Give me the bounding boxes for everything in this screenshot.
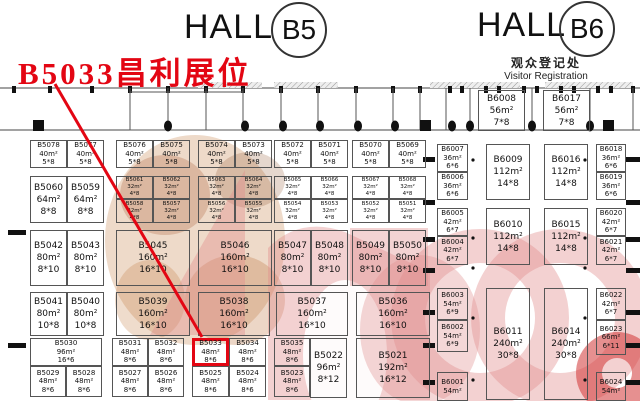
booth-area-label: 32m² xyxy=(322,184,337,191)
booth-area-label: 48m² xyxy=(121,377,140,386)
booth-id-label: B5027 xyxy=(119,369,142,378)
booth-dims-label: 8*10 xyxy=(282,264,304,276)
booth-id-label: B5061 xyxy=(126,177,144,184)
booth-id-label: B5057 xyxy=(163,201,181,208)
booth-dims-label: 8*8 xyxy=(41,206,57,218)
booth-dims-label: 16*10 xyxy=(379,320,406,332)
booth-dims-label: 14*8 xyxy=(497,178,519,190)
booth-dims-label: 7*8 xyxy=(494,117,510,129)
booth-B5053: B505332m²4*8 xyxy=(311,199,348,223)
booth-area-label: 32m² xyxy=(363,184,378,191)
booth-dims-label: 4*8 xyxy=(167,191,177,198)
booth-area-label: 32m² xyxy=(400,184,415,191)
booth-dims-label: 16*6 xyxy=(58,356,75,365)
booth-B5076: B507640m²5*8 xyxy=(116,140,153,168)
booth-area-label: 40m² xyxy=(244,150,263,159)
booth-area-label: 96m² xyxy=(317,362,341,374)
hall-b5-badge: B5 xyxy=(271,2,327,58)
booth-dims-label: 8*8 xyxy=(78,206,94,218)
booth-id-label: B5046 xyxy=(220,240,249,252)
booth-id-label: B5026 xyxy=(155,369,178,378)
booth-B5058: B505832m²4*8 xyxy=(116,199,153,223)
booth-id-label: B5032 xyxy=(155,339,178,348)
booth-area-label: 64m² xyxy=(37,194,61,206)
booth-area-label: 32m² xyxy=(209,184,224,191)
booth-B5056: B505632m²4*8 xyxy=(198,199,235,223)
booth-area-label: 80m² xyxy=(281,252,305,264)
booth-area-label: 80m² xyxy=(37,252,61,264)
booth-id-label: B5077 xyxy=(74,141,97,150)
booth-dims-label: 8*6 xyxy=(124,386,136,395)
booth-dims-label: 8*6 xyxy=(204,386,216,395)
booth-id-label: B5023 xyxy=(281,369,304,378)
booth-id-label: B5049 xyxy=(356,240,385,252)
booth-id-label: B5051 xyxy=(399,201,417,208)
booth-B5026: B502648m²8*6 xyxy=(148,366,184,397)
booth-B6007: B600736m²6*6 xyxy=(437,144,468,172)
booth-area-label: 54m² xyxy=(443,300,462,309)
booth-B5032: B503248m²8*6 xyxy=(148,338,184,366)
booth-id-label: B5072 xyxy=(281,141,304,150)
booth-B5030: B503096m²16*6 xyxy=(30,338,102,366)
booth-dims-label: 8*6 xyxy=(241,386,253,395)
booth-dims-label: 8*10 xyxy=(397,264,419,276)
booth-B6005: B600542m²6*7 xyxy=(437,208,468,236)
booth-B6006: B600636m²6*6 xyxy=(437,172,468,200)
booth-dims-label: 4*8 xyxy=(249,215,259,222)
booth-area-label: 160m² xyxy=(138,252,168,264)
booth-B5071: B507140m²5*8 xyxy=(311,140,348,168)
booth-area-label: 160m² xyxy=(378,308,408,320)
booth-B5072: B507240m²5*8 xyxy=(274,140,311,168)
booth-B5025: B502548m²8*6 xyxy=(192,366,229,397)
booth-id-label: B5048 xyxy=(315,240,344,252)
booth-area-label: 56m² xyxy=(555,105,579,117)
booth-B5047: B504780m²8*10 xyxy=(274,230,311,286)
booth-dims-label: 5*8 xyxy=(323,158,335,167)
booth-id-label: B5065 xyxy=(284,177,302,184)
booth-dims-label: 6*11 xyxy=(603,342,620,351)
booth-area-label: 36m² xyxy=(443,154,462,163)
booth-B5051: B505132m²4*8 xyxy=(389,199,426,223)
booth-id-label: B5036 xyxy=(378,296,407,308)
booth-B6024: B602454m² xyxy=(596,372,626,401)
booth-dims-label: 4*8 xyxy=(403,191,413,198)
booth-area-label: 36m² xyxy=(602,154,621,163)
booth-area-label: 80m² xyxy=(74,308,98,320)
booth-id-label: B5030 xyxy=(55,339,78,348)
booth-dims-label: 16*10 xyxy=(298,320,325,332)
booth-B5050: B505080m²8*10 xyxy=(389,230,426,286)
booth-dims-label: 16*10 xyxy=(221,264,248,276)
booth-dims-label: 16*12 xyxy=(379,374,406,386)
booth-area-label: 48m² xyxy=(201,348,220,357)
booth-area-label: 40m² xyxy=(361,150,380,159)
booth-B5077: B507740m²5*8 xyxy=(67,140,104,168)
booth-area-label: 40m² xyxy=(283,150,302,159)
booth-id-label: B5076 xyxy=(123,141,146,150)
hall-b6-title: HALL xyxy=(477,6,566,45)
booth-B5041: B504180m²10*8 xyxy=(30,292,67,336)
booth-B5034: B503448m²8*6 xyxy=(229,338,266,366)
booth-id-label: B5074 xyxy=(205,141,228,150)
booth-dims-label: 6*7 xyxy=(605,226,617,235)
booth-B5024: B502448m²8*6 xyxy=(229,366,266,397)
booth-B5046: B5046160m²16*10 xyxy=(198,230,272,286)
booth-id-label: B5034 xyxy=(236,339,259,348)
booth-area-label: 42m² xyxy=(602,300,621,309)
booth-B5049: B504980m²8*10 xyxy=(352,230,389,286)
booth-id-label: B5045 xyxy=(138,240,167,252)
booth-B6004: B600442m²6*7 xyxy=(437,236,468,265)
booth-area-label: 40m² xyxy=(76,150,95,159)
booth-id-label: B6008 xyxy=(487,93,516,105)
booth-id-label: B6005 xyxy=(441,209,464,218)
booth-id-label: B6011 xyxy=(493,326,522,338)
booth-id-label: B6006 xyxy=(441,173,464,182)
booth-B5043: B504380m²8*10 xyxy=(67,230,104,286)
booth-B5023: B502348m²8*6 xyxy=(274,366,310,397)
booth-B5052: B505232m²4*8 xyxy=(352,199,389,223)
booth-area-label: 160m² xyxy=(138,308,168,320)
booth-id-label: B6016 xyxy=(551,154,580,166)
booth-id-label: B6017 xyxy=(552,93,581,105)
booth-id-label: B5067 xyxy=(362,177,380,184)
booth-id-label: B5066 xyxy=(321,177,339,184)
booth-area-label: 48m² xyxy=(39,377,58,386)
booth-dims-label: 7*8 xyxy=(559,117,575,129)
booth-dims-label: 8*6 xyxy=(204,356,216,365)
booth-dims-label: 4*8 xyxy=(325,215,335,222)
booth-dims-label: 8*10 xyxy=(319,264,341,276)
booth-area-label: 48m² xyxy=(157,348,176,357)
hall-b6-badge: B6 xyxy=(559,1,615,57)
booth-dims-label: 8*6 xyxy=(286,356,298,365)
booth-dims-label: 6*7 xyxy=(446,226,458,235)
booth-B5037: B5037160m²16*10 xyxy=(276,292,348,336)
booth-dims-label: 6*9 xyxy=(446,308,458,317)
booth-dims-label: 14*8 xyxy=(555,178,577,190)
booth-id-label: B6001 xyxy=(441,378,464,387)
booth-dims-label: 4*8 xyxy=(288,191,298,198)
booth-area-label: 112m² xyxy=(493,166,523,178)
booth-area-label: 32m² xyxy=(246,208,261,215)
booth-B5066: B506632m²4*8 xyxy=(311,176,348,199)
booth-id-label: B5024 xyxy=(236,369,259,378)
booth-id-label: B6022 xyxy=(600,291,623,300)
booth-id-label: B5042 xyxy=(34,240,63,252)
booth-area-label: 40m² xyxy=(398,150,417,159)
booth-dims-label: 6*6 xyxy=(446,162,458,171)
booth-area-label: 240m² xyxy=(551,338,581,350)
booth-id-label: B6018 xyxy=(600,145,623,154)
booth-area-label: 240m² xyxy=(493,338,523,350)
booth-dims-label: 8*6 xyxy=(160,386,172,395)
booth-B5031: B503148m²8*6 xyxy=(112,338,148,366)
booth-area-label: 48m² xyxy=(75,377,94,386)
booth-B5036: B5036160m²16*10 xyxy=(356,292,430,336)
booth-dims-label: 8*6 xyxy=(42,386,54,395)
booth-dims-label: 30*8 xyxy=(497,350,519,362)
booth-area-label: 80m² xyxy=(318,252,342,264)
booth-dims-label: 5*8 xyxy=(79,158,91,167)
booth-dims-label: 4*8 xyxy=(366,215,376,222)
booth-id-label: B5021 xyxy=(378,350,407,362)
booth-dims-label: 4*8 xyxy=(325,191,335,198)
booth-dims-label: 6*7 xyxy=(605,255,617,264)
booth-B5068: B506832m²4*8 xyxy=(389,176,426,199)
booth-area-label: 48m² xyxy=(201,377,220,386)
booth-area-label: 192m² xyxy=(378,362,408,374)
booth-B5078: B507840m²5*8 xyxy=(30,140,67,168)
booth-area-label: 40m² xyxy=(162,150,181,159)
booth-B6010: B6010112m²14*8 xyxy=(486,208,530,265)
floor-plan: B507840m²5*8B507740m²5*8B507640m²5*8B507… xyxy=(0,0,640,401)
booth-id-label: B5056 xyxy=(208,201,226,208)
booth-id-label: B5055 xyxy=(245,201,263,208)
booth-B5063: B506332m²4*8 xyxy=(198,176,235,199)
booth-id-label: B5069 xyxy=(396,141,419,150)
visitor-registration-zh: 观众登记处 xyxy=(488,56,604,70)
booth-B5028: B502848m²8*6 xyxy=(66,366,102,397)
booth-area-label: 36m² xyxy=(602,182,621,191)
hall-b5-title: HALL xyxy=(184,8,273,47)
booth-dims-label: 4*8 xyxy=(403,215,413,222)
booth-area-label: 32m² xyxy=(322,208,337,215)
booth-dims-label: 8*6 xyxy=(286,386,298,395)
booth-id-label: B5064 xyxy=(245,177,263,184)
booth-area-label: 42m² xyxy=(443,246,462,255)
booth-dims-label: 4*8 xyxy=(167,215,177,222)
booth-dims-label: 5*8 xyxy=(128,158,140,167)
booth-id-label: B5031 xyxy=(119,339,142,348)
booth-B6009: B6009112m²14*8 xyxy=(486,144,530,200)
booth-dims-label: 6*9 xyxy=(446,340,458,349)
booth-id-label: B5068 xyxy=(399,177,417,184)
booth-area-label: 32m² xyxy=(400,208,415,215)
booth-dims-label: 6*6 xyxy=(605,162,617,171)
booth-dims-label: 14*8 xyxy=(555,243,577,255)
booth-area-label: 48m² xyxy=(283,348,302,357)
booth-B6003: B600354m²6*9 xyxy=(437,288,468,320)
booth-id-label: B5033 xyxy=(199,339,222,348)
booth-area-label: 40m² xyxy=(320,150,339,159)
booth-id-label: B5029 xyxy=(37,369,60,378)
booth-dims-label: 8*6 xyxy=(124,356,136,365)
booth-id-label: B5050 xyxy=(393,240,422,252)
booth-B5073: B507340m²5*8 xyxy=(235,140,272,168)
booth-id-label: B5078 xyxy=(37,141,60,150)
booth-id-label: B5059 xyxy=(71,182,100,194)
booth-id-label: B5039 xyxy=(138,296,167,308)
booth-dims-label: 16*10 xyxy=(139,264,166,276)
booth-area-label: 54m² xyxy=(443,387,462,396)
booth-B6002: B600254m²6*9 xyxy=(437,320,468,352)
booth-area-label: 48m² xyxy=(157,377,176,386)
booth-area-label: 112m² xyxy=(551,166,581,178)
booth-B5048: B504880m²8*10 xyxy=(311,230,348,286)
booth-area-label: 32m² xyxy=(209,208,224,215)
booth-area-label: 48m² xyxy=(238,377,257,386)
booth-B5060: B506064m²8*8 xyxy=(30,176,67,223)
booth-dims-label: 5*8 xyxy=(165,158,177,167)
booth-B5075: B507540m²5*8 xyxy=(153,140,190,168)
booth-id-label: B6003 xyxy=(441,291,464,300)
booth-dims-label: 6*7 xyxy=(605,308,617,317)
booth-B5057: B505732m²4*8 xyxy=(153,199,190,223)
booth-B5059: B505964m²8*8 xyxy=(67,176,104,223)
booth-id-label: B5071 xyxy=(318,141,341,150)
booth-B6011: B6011240m²30*8 xyxy=(486,288,530,400)
booth-id-label: B5060 xyxy=(34,182,63,194)
booth-area-label: 32m² xyxy=(164,208,179,215)
booth-dims-label: 4*8 xyxy=(212,215,222,222)
booth-area-label: 48m² xyxy=(238,348,257,357)
booth-id-label: B6020 xyxy=(600,209,623,218)
booth-B5027: B502748m²8*6 xyxy=(112,366,148,397)
booth-area-label: 32m² xyxy=(363,208,378,215)
booth-B6019: B601936m²6*6 xyxy=(596,172,626,200)
booth-area-label: 40m² xyxy=(207,150,226,159)
booth-id-label: B6023 xyxy=(600,325,623,334)
booth-B5035: B503548m²8*6 xyxy=(274,338,310,366)
booth-id-label: B6019 xyxy=(600,173,623,182)
booth-id-label: B5058 xyxy=(126,201,144,208)
booth-area-label: 42m² xyxy=(602,218,621,227)
booth-area-label: 54m² xyxy=(443,332,462,341)
booth-dims-label: 16*10 xyxy=(139,320,166,332)
booth-area-label: 36m² xyxy=(443,182,462,191)
booth-id-label: B6010 xyxy=(493,219,522,231)
booth-B6008: B600856m²7*8 xyxy=(478,90,525,131)
booth-B5038: B5038160m²16*10 xyxy=(198,292,270,336)
booth-area-label: 42m² xyxy=(602,246,621,255)
booth-dims-label: 8*10 xyxy=(75,264,97,276)
booth-B5070: B507040m²5*8 xyxy=(352,140,389,168)
booth-dims-label: 4*8 xyxy=(130,191,140,198)
booth-B6023: B602366m²6*11 xyxy=(596,320,626,355)
booth-dims-label: 30*8 xyxy=(555,350,577,362)
booth-id-label: B6002 xyxy=(441,323,464,332)
booth-area-label: 54m² xyxy=(602,387,621,396)
booth-dims-label: 10*8 xyxy=(75,320,97,332)
booth-dims-label: 8*6 xyxy=(78,386,90,395)
booth-B5069: B506940m²5*8 xyxy=(389,140,426,168)
booth-area-label: 40m² xyxy=(39,150,58,159)
booth-B6017: B601756m²7*8 xyxy=(543,90,590,131)
booth-B6022: B602242m²6*7 xyxy=(596,288,626,320)
booth-B5040: B504080m²10*8 xyxy=(67,292,104,336)
booth-B5054: B505432m²4*8 xyxy=(274,199,311,223)
booth-callout-label: B5033昌利展位 xyxy=(18,48,252,93)
booth-area-label: 96m² xyxy=(57,348,76,357)
booth-id-label: B5047 xyxy=(278,240,307,252)
booth-id-label: B5062 xyxy=(163,177,181,184)
booth-dims-label: 4*8 xyxy=(366,191,376,198)
booth-id-label: B5025 xyxy=(199,369,222,378)
booth-dims-label: 5*8 xyxy=(247,158,259,167)
booth-B6021: B602142m²6*7 xyxy=(596,236,626,265)
booth-area-label: 32m² xyxy=(127,208,142,215)
booth-dims-label: 5*8 xyxy=(401,158,413,167)
booth-id-label: B5037 xyxy=(297,296,326,308)
visitor-registration: 观众登记处 Visitor Registration xyxy=(488,56,604,83)
booth-id-label: B5053 xyxy=(321,201,339,208)
booth-id-label: B6004 xyxy=(441,238,464,247)
booth-area-label: 32m² xyxy=(285,208,300,215)
booth-dims-label: 5*8 xyxy=(42,158,54,167)
booth-dims-label: 8*6 xyxy=(241,356,253,365)
booth-dims-label: 5*8 xyxy=(210,158,222,167)
booth-area-label: 80m² xyxy=(359,252,383,264)
booth-B6001: B600154m² xyxy=(437,372,468,401)
booth-area-label: 80m² xyxy=(74,252,98,264)
booth-id-label: B5038 xyxy=(219,296,248,308)
booth-dims-label: 16*10 xyxy=(220,320,247,332)
booth-area-label: 80m² xyxy=(37,308,61,320)
booth-B5055: B505532m²4*8 xyxy=(235,199,272,223)
booth-B5064: B506432m²4*8 xyxy=(235,176,272,199)
booth-id-label: B6015 xyxy=(551,219,580,231)
booth-B5042: B504280m²8*10 xyxy=(30,230,67,286)
booth-area-label: 112m² xyxy=(551,231,581,243)
booth-id-label: B5070 xyxy=(359,141,382,150)
booth-B5065: B506532m²4*8 xyxy=(274,176,311,199)
booth-B6020: B602042m²6*7 xyxy=(596,208,626,236)
booth-dims-label: 4*8 xyxy=(288,215,298,222)
visitor-registration-en: Visitor Registration xyxy=(488,70,604,83)
booth-id-label: B6007 xyxy=(441,145,464,154)
booth-dims-label: 5*8 xyxy=(364,158,376,167)
booth-area-label: 64m² xyxy=(74,194,98,206)
booth-dims-label: 6*6 xyxy=(446,190,458,199)
booth-B6014: B6014240m²30*8 xyxy=(544,288,588,400)
booth-area-label: 160m² xyxy=(220,252,250,264)
booth-B6018: B601836m²6*6 xyxy=(596,144,626,172)
booth-dims-label: 8*10 xyxy=(38,264,60,276)
booth-id-label: B6009 xyxy=(493,154,522,166)
booth-dims-label: 8*12 xyxy=(318,374,340,386)
booth-dims-label: 8*6 xyxy=(160,356,172,365)
booth-area-label: 56m² xyxy=(490,105,514,117)
booth-dims-label: 4*8 xyxy=(212,191,222,198)
booth-dims-label: 6*6 xyxy=(605,190,617,199)
booth-area-label: 48m² xyxy=(283,377,302,386)
booth-area-label: 80m² xyxy=(396,252,420,264)
booth-B6016: B6016112m²14*8 xyxy=(544,144,588,200)
booth-id-label: B5043 xyxy=(71,240,100,252)
booth-area-label: 112m² xyxy=(493,231,523,243)
booth-area-label: 40m² xyxy=(125,150,144,159)
booth-area-label: 160m² xyxy=(219,308,249,320)
booth-id-label: B5041 xyxy=(34,296,63,308)
booth-area-label: 42m² xyxy=(443,218,462,227)
booth-dims-label: 4*8 xyxy=(130,215,140,222)
booth-dims-label: 10*8 xyxy=(38,320,60,332)
booth-dims-label: 4*8 xyxy=(249,191,259,198)
booth-B5074: B507440m²5*8 xyxy=(198,140,235,168)
booth-B5045: B5045160m²16*10 xyxy=(116,230,190,286)
booth-area-label: 32m² xyxy=(285,184,300,191)
booth-id-label: B5075 xyxy=(160,141,183,150)
booth-dims-label: 5*8 xyxy=(286,158,298,167)
booth-dims-label: 6*7 xyxy=(446,255,458,264)
booth-B6015: B6015112m²14*8 xyxy=(544,208,588,265)
booth-id-label: B6024 xyxy=(600,378,623,387)
booth-id-label: B5073 xyxy=(242,141,265,150)
booth-id-label: B5035 xyxy=(281,339,304,348)
booth-id-label: B5040 xyxy=(71,296,100,308)
